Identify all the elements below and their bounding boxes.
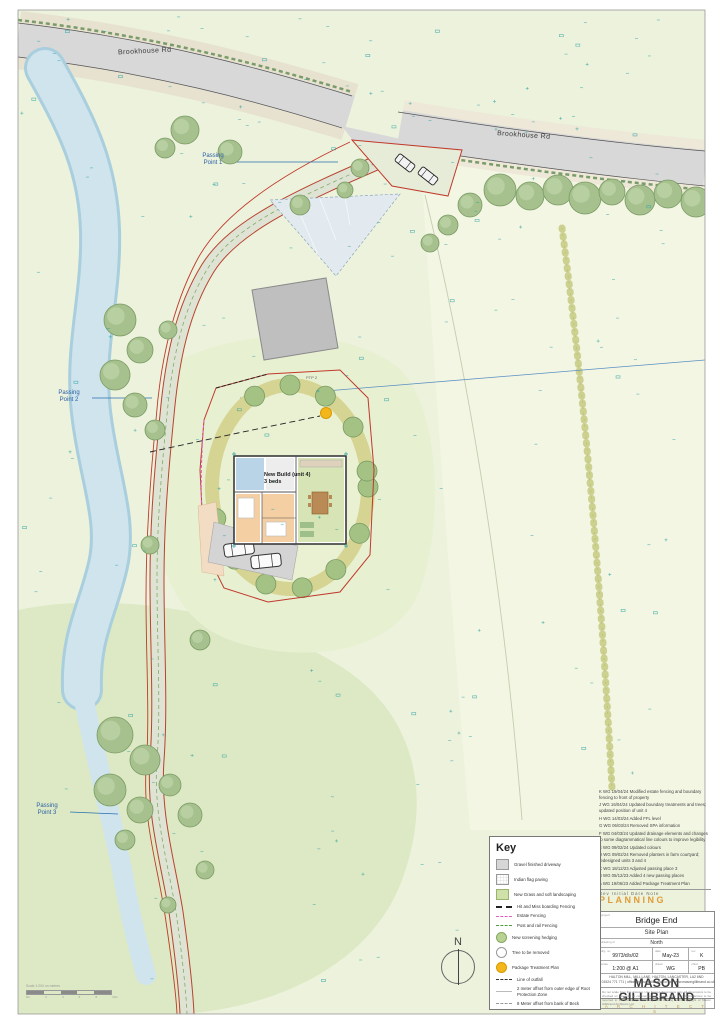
north-arrow: N bbox=[438, 936, 478, 984]
revision-entry: D WG 09/02/24 Removed planters in farm c… bbox=[599, 852, 711, 863]
rpz-offset-line bbox=[496, 991, 512, 992]
existing-barn bbox=[252, 278, 338, 360]
revision-list: K WG 19/04/24 Modified estate fencing an… bbox=[599, 789, 711, 896]
north-letter: N bbox=[438, 936, 478, 948]
revision-entry: F WG 04/03/24 Updated drainage elements … bbox=[599, 831, 711, 842]
legend-key: Key Gravel finished driveway Indian flag… bbox=[489, 836, 601, 1010]
revision-entry: A WG 19/06/23 Added Package Treatment Pl… bbox=[599, 881, 711, 887]
revision-entry: J WG 16/04/24 Updated boundary treatment… bbox=[599, 802, 711, 813]
orientation-field-label: drawing of bbox=[601, 940, 615, 944]
disclaimer-text: Do not scale from this drawing. Use figu… bbox=[598, 987, 715, 1009]
revision-entry: K WG 19/04/24 Modified estate fencing an… bbox=[599, 789, 711, 800]
project-field-label: project bbox=[601, 913, 610, 917]
outfall-line-swatch bbox=[496, 979, 512, 980]
revision-entry: C WG 18/12/23 Adjusted passing place 3 bbox=[599, 866, 711, 872]
key-item-label: Line of outfall bbox=[517, 977, 543, 982]
post-rail-fence-line bbox=[496, 925, 512, 926]
project-name: Bridge End bbox=[599, 912, 714, 925]
north-needle bbox=[458, 949, 460, 985]
key-item-label: 8 Meter offset from bank of Beck bbox=[517, 1001, 579, 1006]
key-item-label: Gravel finished driveway bbox=[514, 862, 561, 867]
hedge-circle bbox=[496, 932, 507, 943]
hit-miss-fence-line bbox=[496, 906, 512, 908]
key-item-label: New Grass and soft landscaping bbox=[514, 892, 576, 897]
drawing-title: Site Plan bbox=[599, 928, 714, 936]
key-item-label: New screening hedging bbox=[512, 935, 557, 940]
key-item-label: Post and rail Fencing bbox=[517, 923, 557, 928]
title-block-footer: HALTON MILL, MILL LANE, HALTON, LANCASTE… bbox=[598, 975, 715, 1009]
key-item-label: Estate Fencing bbox=[517, 913, 546, 918]
key-item-label: Indian flag paving bbox=[514, 877, 548, 882]
firm-contact: T: 01524 771 771 | office@masongillibran… bbox=[598, 980, 715, 985]
key-title: Key bbox=[496, 842, 594, 854]
new-build-label: New Build (unit 4) 3 beds bbox=[264, 472, 326, 485]
scale-label: scale bbox=[601, 962, 608, 966]
orientation-value: North bbox=[599, 939, 714, 946]
key-item-label: 2 meter offset from outer edge of Root P… bbox=[517, 986, 594, 997]
ptp-label: PTP 2 bbox=[306, 375, 317, 380]
revision-entry: E WG 09/02/24 Updated colours bbox=[599, 845, 711, 851]
status-stamp: PLANNING bbox=[599, 895, 666, 905]
date-label: date bbox=[655, 949, 661, 953]
drawn-label: drawn bbox=[655, 962, 663, 966]
scale-ticks: 0m246810m bbox=[26, 995, 118, 999]
passing-point-2-label: Passing Point 2 bbox=[48, 390, 90, 404]
package-treatment-plant-marker bbox=[321, 408, 332, 419]
rev-label: rev bbox=[691, 949, 695, 953]
grass-swatch bbox=[496, 889, 509, 900]
key-item-label: Package Treatment Plan bbox=[512, 965, 559, 970]
tree-removed-circle bbox=[496, 947, 507, 958]
checked-label: chkd bbox=[691, 962, 697, 966]
passing-point-1-label: Passing Point 1 bbox=[192, 153, 234, 167]
key-item-label: Tree to be removed bbox=[512, 950, 549, 955]
gravel-swatch bbox=[496, 859, 509, 870]
scale-bar: Scale 1:200 on metres 0m246810m bbox=[26, 984, 136, 999]
revision-entry: H WG 14/03/24 Added FFL level bbox=[599, 816, 711, 822]
passing-point-3-label: Passing Point 3 bbox=[26, 803, 68, 817]
beck-offset-line bbox=[496, 1003, 512, 1004]
revision-entry: B WG 05/12/23 Added 4 new passing places bbox=[599, 873, 711, 879]
paving-swatch bbox=[496, 874, 509, 885]
estate-fence-line bbox=[496, 916, 512, 917]
revision-entry: G WG 06/03/24 Removed SPA information bbox=[599, 823, 711, 829]
house-floorplan bbox=[232, 452, 348, 548]
scale-ruler bbox=[26, 990, 112, 995]
drg-no-label: drg. no bbox=[601, 949, 610, 953]
site-plan-sheet: Brookhouse Rd Brookhouse Rd Passing Poin… bbox=[0, 0, 723, 1024]
ptp-circle bbox=[496, 962, 507, 973]
key-item-label: Hit and Miss boarding Fencing bbox=[517, 904, 575, 909]
car bbox=[250, 553, 281, 569]
scale-caption: Scale 1:200 on metres bbox=[26, 984, 136, 988]
